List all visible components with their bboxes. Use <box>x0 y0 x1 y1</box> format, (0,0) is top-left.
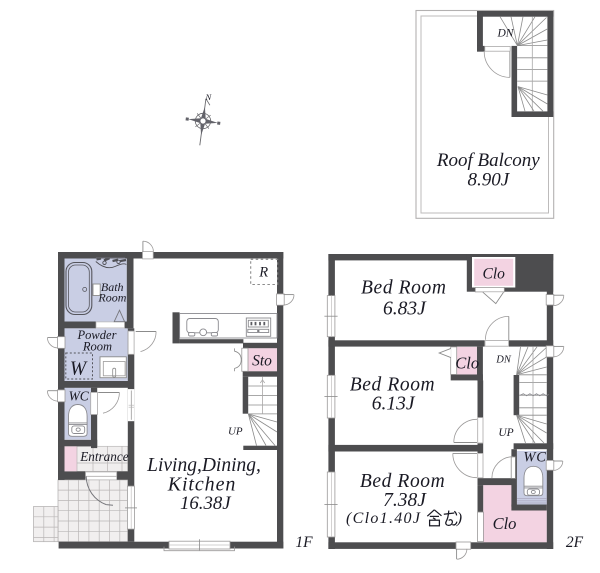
svg-text:DN: DN <box>497 28 515 40</box>
svg-text:UP: UP <box>228 425 243 437</box>
svg-text:Bed Room: Bed Room <box>350 375 436 396</box>
svg-text:DN: DN <box>495 355 512 366</box>
svg-text:Roof Balcony: Roof Balcony <box>436 150 540 171</box>
svg-text:7.38J: 7.38J <box>383 490 427 511</box>
svg-text:(Clo1.40J: (Clo1.40J <box>346 510 421 527</box>
svg-text:): ) <box>456 510 462 527</box>
svg-text:W: W <box>70 359 88 380</box>
svg-text:Room: Room <box>82 340 112 354</box>
svg-text:Bed Room: Bed Room <box>361 278 447 299</box>
svg-text:Room: Room <box>97 291 126 305</box>
svg-text:Entrance: Entrance <box>79 449 128 464</box>
svg-text:WC: WC <box>523 450 546 466</box>
svg-text:UP: UP <box>498 427 513 439</box>
svg-text:WC: WC <box>69 389 90 404</box>
svg-text:Bed Room: Bed Room <box>360 471 446 492</box>
svg-text:16.38J: 16.38J <box>180 493 232 514</box>
svg-text:2F: 2F <box>566 534 584 551</box>
svg-text:6.13J: 6.13J <box>372 394 416 415</box>
svg-text:6.83J: 6.83J <box>383 299 427 320</box>
svg-text:1F: 1F <box>295 534 313 551</box>
svg-text:R: R <box>258 264 268 280</box>
svg-text:Sto: Sto <box>252 353 272 370</box>
svg-text:Clo: Clo <box>455 354 479 373</box>
svg-text:Clo: Clo <box>482 265 505 282</box>
svg-text:Clo: Clo <box>493 514 517 533</box>
svg-text:8.90J: 8.90J <box>467 170 510 191</box>
